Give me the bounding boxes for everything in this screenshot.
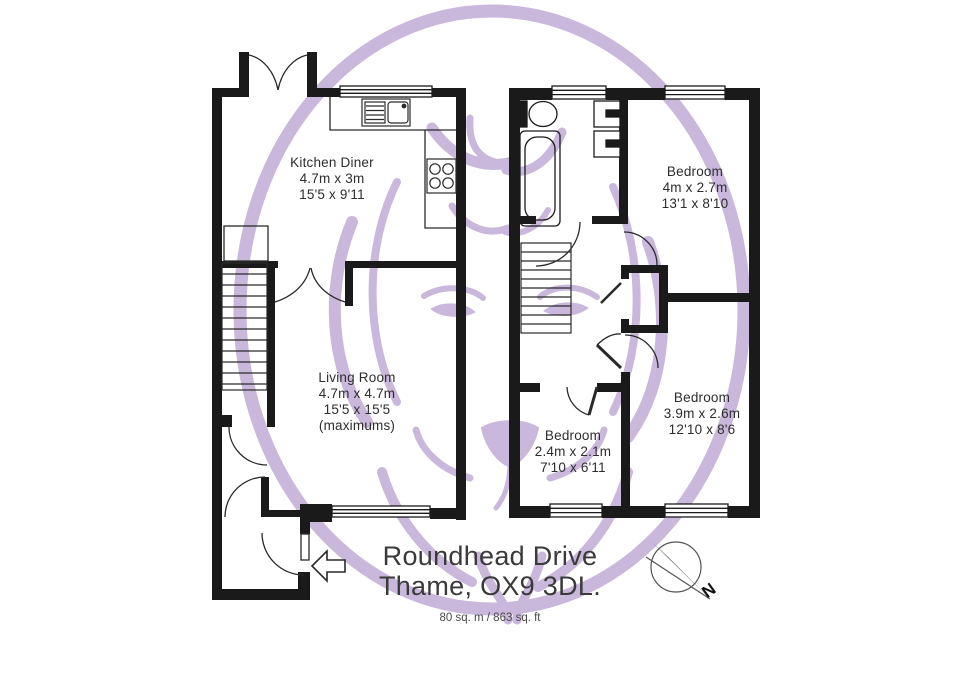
room-name: Living Room bbox=[272, 370, 442, 386]
basin-icons bbox=[594, 101, 620, 157]
floorplan-page: Kitchen Diner 4.7m x 3m 15'5 x 9'11 Livi… bbox=[0, 0, 980, 693]
plan-title-line2: Thame, OX9 3DL. bbox=[280, 571, 700, 601]
room-size-metric: 3.9m x 2.6m bbox=[617, 406, 787, 422]
room-size-imperial: 13'1 x 8'10 bbox=[610, 196, 780, 212]
total-area-note: 80 sq. m / 863 sq. ft bbox=[390, 612, 590, 624]
room-size-metric: 4m x 2.7m bbox=[610, 180, 780, 196]
room-size-metric: 4.7m x 4.7m bbox=[272, 386, 442, 402]
room-label-bedroom-3: Bedroom 2.4m x 2.1m 7'10 x 6'11 bbox=[488, 428, 658, 476]
room-name: Bedroom bbox=[488, 428, 658, 444]
bathtub-icon bbox=[520, 131, 560, 226]
kitchen-sink-icon bbox=[362, 99, 410, 126]
hob-icon bbox=[427, 159, 456, 193]
room-size-metric: 2.4m x 2.1m bbox=[488, 444, 658, 460]
room-size-metric: 4.7m x 3m bbox=[247, 171, 417, 187]
plan-title: Roundhead Drive Thame, OX9 3DL. bbox=[280, 541, 700, 601]
room-label-kitchen-diner: Kitchen Diner 4.7m x 3m 15'5 x 9'11 bbox=[247, 155, 417, 203]
window-bedroom3-bottom bbox=[550, 504, 602, 517]
room-name: Bedroom bbox=[610, 164, 780, 180]
window-bedroom1-top bbox=[665, 86, 725, 99]
room-name: Bedroom bbox=[617, 390, 787, 406]
room-size-note: (maximums) bbox=[272, 418, 442, 434]
room-size-imperial: 7'10 x 6'11 bbox=[488, 460, 658, 476]
window-bathroom-top bbox=[552, 86, 606, 99]
window-kitchen-top bbox=[340, 86, 432, 97]
room-label-bedroom-1: Bedroom 4m x 2.7m 13'1 x 8'10 bbox=[610, 164, 780, 212]
room-size-imperial: 15'5 x 15'5 bbox=[272, 402, 442, 418]
room-size-imperial: 15'5 x 9'11 bbox=[247, 187, 417, 203]
toilet-icon bbox=[517, 101, 557, 127]
plan-title-line1: Roundhead Drive bbox=[280, 541, 700, 571]
room-name: Kitchen Diner bbox=[247, 155, 417, 171]
lion-watermark bbox=[240, 11, 744, 620]
window-living-bottom bbox=[332, 506, 430, 517]
room-label-living-room: Living Room 4.7m x 4.7m 15'5 x 15'5 (max… bbox=[272, 370, 442, 434]
window-bedroom2-bottom bbox=[665, 504, 728, 517]
